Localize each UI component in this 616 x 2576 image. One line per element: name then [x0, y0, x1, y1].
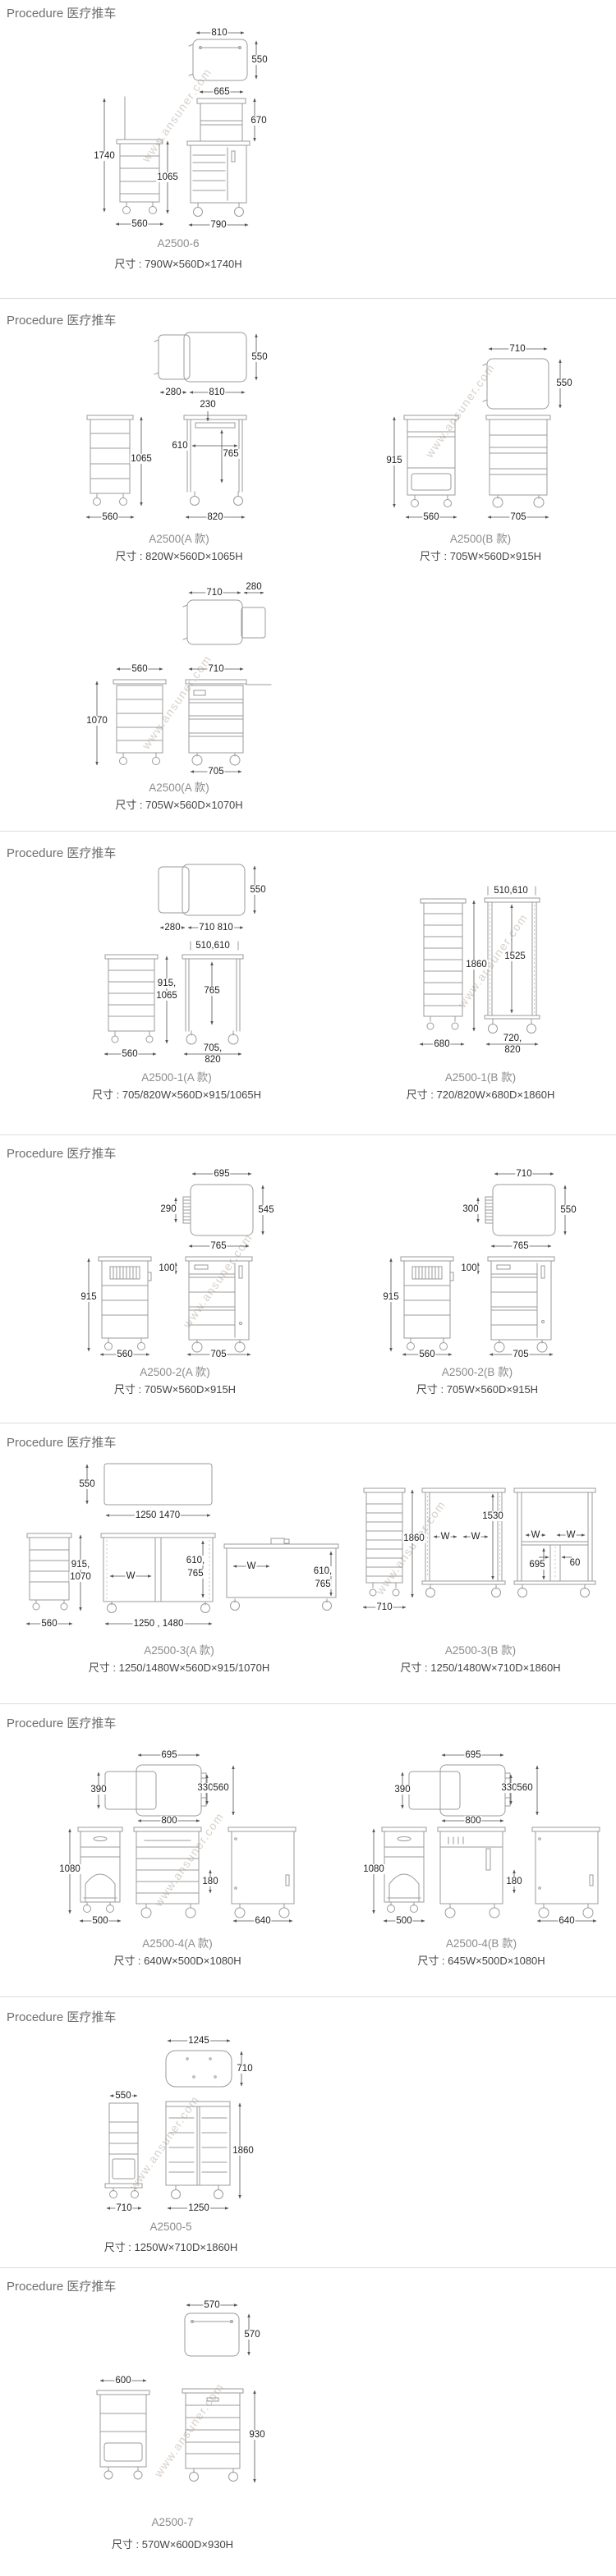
fig-a2500-1a-front-view — [104, 955, 167, 1054]
fig-a2500-7-front-view — [182, 2389, 255, 2482]
fig-a2500-2b-top-view — [478, 1174, 565, 1235]
fig-a2500-6-front-view — [187, 141, 250, 225]
dim-label: 510,610 — [493, 886, 529, 896]
fig-a2500-4a-front-view — [134, 1821, 210, 1918]
dim-label: 710 — [236, 2064, 253, 2074]
dim-label: 765 — [512, 1241, 529, 1251]
dim-label: 810 — [210, 28, 228, 38]
dim-label: 550 — [114, 2091, 131, 2101]
dim-label: 820 — [206, 512, 223, 522]
dim-label: 280 — [164, 387, 182, 397]
dim-label: 1740 — [93, 151, 116, 161]
fig-a2500-a-front-view — [86, 415, 141, 517]
fig-a2500-2a-side-view — [176, 1246, 252, 1354]
dim-label: 710 — [508, 344, 526, 354]
dim-label: 500 — [395, 1916, 412, 1926]
model-caption: A2500-4(B 款) — [446, 1934, 517, 1950]
dim-label: 570 — [243, 2330, 260, 2340]
size-caption: 尺寸 : 820W×560D×1065H — [115, 548, 242, 563]
size-caption: 尺寸 : 1250/1480W×710D×1860H — [400, 1659, 560, 1675]
dim-label: 600 — [114, 2376, 131, 2386]
fig-a2500-1a-top-view — [159, 864, 255, 928]
dim-label: 915 — [80, 1292, 97, 1302]
fig-a2500-3b-front-view — [422, 1488, 505, 1597]
model-caption: A2500(A 款) — [149, 778, 209, 795]
dim-label: 1530 — [481, 1511, 504, 1521]
fig-a2500-7-side-view — [97, 2381, 149, 2479]
dim-label: 290 — [159, 1204, 177, 1214]
model-caption: A2500(B 款) — [450, 529, 511, 546]
dim-label: 790 — [209, 220, 227, 230]
dim-label: 100 — [158, 1263, 175, 1273]
dim-label: 915 — [382, 1292, 399, 1302]
dim-label: 1070 — [85, 716, 108, 726]
model-caption: A2500-6 — [157, 237, 199, 250]
dim-label: 930 — [248, 2430, 265, 2440]
fig-a2500-5-side-view — [105, 2096, 142, 2208]
dim-label: 820 — [503, 1045, 521, 1055]
model-caption: A2500(A 款) — [149, 529, 209, 546]
dim-label: 390 — [90, 1785, 107, 1794]
dim-label: 640 — [254, 1916, 271, 1926]
dim-label: 560 — [101, 512, 118, 522]
fig-a2500-2a-front-view — [89, 1257, 151, 1354]
dim-label: 695 — [464, 1750, 481, 1760]
dim-label: 915, — [71, 1560, 90, 1570]
dim-label: 705 — [509, 512, 526, 522]
size-caption: 尺寸 : 790W×560D×1740H — [114, 255, 241, 271]
dim-label: 1070 — [69, 1572, 92, 1582]
fig-a2500-1b-front-view — [420, 899, 474, 1044]
dim-label: 280 — [163, 923, 181, 933]
dim-label: 560 — [116, 1350, 133, 1359]
dim-label: 1250 1470 — [135, 1510, 181, 1520]
dim-label: 330 — [196, 1783, 214, 1793]
dim-label: 610, — [186, 1556, 205, 1565]
fig-a2500-6-upper-frame — [197, 92, 255, 141]
size-caption: 尺寸 : 645W×500D×1080H — [417, 1952, 545, 1968]
dim-label: 915 — [385, 456, 402, 465]
dim-label: 550 — [251, 55, 268, 65]
size-caption: 尺寸 : 705W×560D×915H — [416, 1381, 538, 1396]
dim-label: 550 — [555, 378, 572, 388]
dim-label: W — [531, 1530, 541, 1540]
dim-label: 695 — [528, 1560, 545, 1570]
dim-label: 765 — [203, 986, 220, 996]
dim-label: 800 — [160, 1816, 177, 1826]
technical-drawings-layer — [0, 0, 616, 2576]
fig-a2500-3a-top-view — [87, 1464, 212, 1515]
size-caption: 尺寸 : 705W×560D×915H — [114, 1381, 236, 1396]
dim-label: 720, — [503, 1034, 522, 1043]
size-caption: 尺寸 : 1250/1480W×560D×915/1070H — [89, 1659, 269, 1675]
dim-label: 1245 — [187, 2036, 210, 2046]
dim-label: 665 — [213, 87, 230, 97]
dim-label: 300 — [462, 1204, 479, 1214]
dim-label: 710 — [205, 588, 223, 598]
fig-a2500-1a-side-view — [182, 942, 243, 1054]
dim-label: 180 — [505, 1877, 522, 1886]
dim-label: 570 — [203, 2300, 220, 2310]
fig-a2500-a-top-view — [154, 332, 256, 392]
dim-label: W — [246, 1561, 257, 1571]
fig-a2500-2b-front-view — [391, 1257, 453, 1354]
dim-label: 550 — [251, 352, 268, 362]
fig-a2500-2b-side-view — [478, 1246, 554, 1354]
dim-label: 695 — [213, 1169, 230, 1179]
model-caption: A2500-1(B 款) — [445, 1068, 516, 1084]
fig-a2500-4b-back-view — [532, 1827, 600, 1921]
dim-label: 1065 — [130, 454, 153, 464]
catalog-page: Procedure 医疗推车 Procedure 医疗推车 Procedure … — [0, 0, 616, 2576]
dim-label: 710 — [515, 1169, 532, 1179]
dim-label: 560 — [212, 1783, 229, 1793]
dim-label: 560 — [516, 1783, 533, 1793]
dim-label: 550 — [249, 885, 266, 895]
dim-label: 705, — [203, 1043, 223, 1053]
dim-label: W — [440, 1532, 451, 1542]
dim-label: W — [566, 1530, 577, 1540]
dim-label: 810 — [208, 387, 225, 397]
dim-label: 820 — [204, 1055, 221, 1065]
model-caption: A2500-4(A 款) — [142, 1934, 213, 1950]
dim-label: 560 — [418, 1350, 435, 1359]
dim-label: 705 — [209, 1350, 227, 1359]
size-caption: 尺寸 : 705/820W×560D×915/1065H — [92, 1086, 261, 1102]
dim-label: 560 — [422, 512, 439, 522]
model-caption: A2500-3(A 款) — [144, 1641, 214, 1657]
fig-a2500-b-top-view — [483, 349, 560, 409]
dim-label: 1525 — [503, 951, 526, 961]
dim-label: 680 — [433, 1039, 450, 1049]
model-caption: A2500-7 — [151, 2516, 193, 2528]
fig-a2500-5-top-view — [166, 2041, 241, 2087]
dim-label: 695 — [160, 1750, 177, 1760]
model-caption: A2500-3(B 款) — [445, 1641, 516, 1657]
size-caption: 尺寸 : 705W×560D×1070H — [115, 796, 242, 812]
dim-label: 180 — [201, 1877, 218, 1886]
fig-a2500-6-top-view — [189, 33, 256, 80]
dim-label: 560 — [131, 664, 148, 674]
fig-a2500-2a-top-view — [176, 1174, 263, 1235]
dim-label: 1860 — [465, 960, 488, 969]
dim-label: 1250 — [187, 2203, 210, 2213]
dim-label: 510,610 — [195, 941, 231, 951]
dim-label: 765 — [222, 449, 239, 459]
model-caption: A2500-1(A 款) — [141, 1068, 212, 1084]
fig-a2500-3b-side-view — [363, 1488, 412, 1607]
dim-label: 1860 — [402, 1533, 425, 1543]
size-caption: 尺寸 : 720/820W×680D×1860H — [407, 1086, 555, 1102]
dim-label: 765 — [209, 1241, 227, 1251]
dim-label: 100 — [460, 1263, 477, 1273]
fig-a2500-a-side-view — [184, 411, 246, 517]
dim-label: 705 — [512, 1350, 529, 1359]
dim-label: 610, — [313, 1566, 333, 1576]
dim-label: 230 — [199, 400, 216, 410]
size-caption: 尺寸 : 570W×600D×930H — [112, 2536, 233, 2551]
fig-a2500-b-front-view — [394, 415, 458, 517]
dim-label: 60 — [569, 1558, 582, 1568]
fig-a2500-a2-side-view — [186, 669, 271, 772]
dim-label: 1065 — [156, 172, 179, 182]
fig-a2500-5-front-view — [166, 2102, 240, 2208]
dim-label: 1080 — [362, 1864, 385, 1874]
fig-a2500-4b-front-view — [438, 1821, 514, 1918]
size-caption: 尺寸 : 640W×500D×1080H — [113, 1952, 241, 1968]
dim-label: 545 — [257, 1205, 274, 1215]
dim-label: 765 — [186, 1569, 204, 1579]
dim-label: 330 — [500, 1783, 517, 1793]
dim-label: 1250 , 1480 — [133, 1619, 185, 1629]
dim-label: 550 — [78, 1479, 95, 1489]
dim-label: 765 — [314, 1579, 331, 1589]
dim-label: 710 — [207, 664, 224, 674]
dim-label: 1080 — [58, 1864, 81, 1874]
dim-label: 710 — [375, 1602, 393, 1612]
dim-label: 550 — [559, 1205, 577, 1215]
dim-label: 560 — [121, 1049, 138, 1059]
dim-label: 390 — [393, 1785, 411, 1794]
size-caption: 尺寸 : 705W×560D×915H — [420, 548, 541, 563]
dim-label: 800 — [464, 1816, 481, 1826]
fig-a2500-a2-top-view — [183, 593, 265, 644]
fig-a2500-1b-side-view — [485, 887, 540, 1044]
model-caption: A2500-2(A 款) — [140, 1363, 210, 1379]
dim-label: 915, — [157, 979, 177, 988]
dim-label: 1860 — [232, 2146, 255, 2156]
dim-label: 710 810 — [198, 923, 234, 933]
dim-label: 710 — [115, 2203, 132, 2213]
dim-label: W — [126, 1571, 136, 1581]
dim-label: 280 — [245, 582, 262, 592]
dim-label: 640 — [558, 1916, 575, 1926]
fig-a2500-3b-front-view-2 — [514, 1488, 595, 1597]
dim-label: 705 — [207, 767, 224, 777]
fig-a2500-4a-back-view — [228, 1827, 296, 1921]
dim-label: 560 — [131, 219, 148, 229]
dim-label: 670 — [250, 116, 267, 126]
dim-label: 1065 — [155, 991, 178, 1001]
fig-a2500-7-top-view — [185, 2305, 249, 2356]
dim-label: 560 — [40, 1619, 57, 1629]
fig-a2500-b-side-view — [486, 415, 550, 517]
model-caption: A2500-5 — [149, 2221, 191, 2233]
dim-label: 500 — [91, 1916, 108, 1926]
dim-label: 610 — [171, 441, 188, 451]
dim-label: W — [471, 1532, 481, 1542]
size-caption: 尺寸 : 1250W×710D×1860H — [104, 2239, 238, 2254]
model-caption: A2500-2(B 款) — [442, 1363, 513, 1379]
